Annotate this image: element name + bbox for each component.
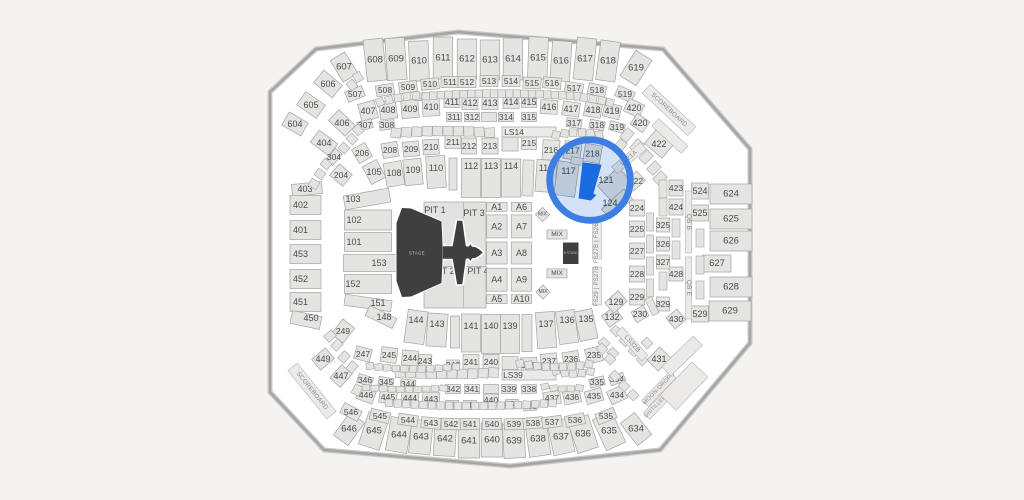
svg-text:112: 112 xyxy=(464,161,478,171)
svg-text:517: 517 xyxy=(567,83,581,93)
svg-text:QB B: QB B xyxy=(685,214,692,230)
svg-text:624: 624 xyxy=(723,189,739,200)
svg-text:634: 634 xyxy=(628,424,644,435)
svg-text:LS14: LS14 xyxy=(504,127,524,137)
svg-text:509: 509 xyxy=(401,82,415,92)
svg-text:213: 213 xyxy=(483,141,497,151)
svg-text:A8: A8 xyxy=(516,248,527,258)
svg-text:609: 609 xyxy=(388,54,404,65)
svg-text:204: 204 xyxy=(334,170,348,180)
svg-text:209: 209 xyxy=(404,144,418,154)
svg-text:325: 325 xyxy=(656,220,670,230)
svg-text:243: 243 xyxy=(418,356,432,366)
svg-text:515: 515 xyxy=(525,78,539,88)
svg-text:641: 641 xyxy=(461,436,477,447)
svg-text:FS29 | PS27B: FS29 | PS27B xyxy=(594,266,600,306)
svg-text:139: 139 xyxy=(502,321,517,331)
svg-text:A2: A2 xyxy=(491,221,502,231)
svg-text:319: 319 xyxy=(610,122,624,132)
svg-text:QB E: QB E xyxy=(685,280,692,297)
svg-text:544: 544 xyxy=(401,415,415,425)
svg-text:113: 113 xyxy=(484,161,498,171)
svg-text:428: 428 xyxy=(669,269,683,279)
svg-text:MIX: MIX xyxy=(551,270,563,277)
svg-text:413: 413 xyxy=(482,98,497,108)
svg-text:613: 613 xyxy=(482,55,498,66)
svg-text:228: 228 xyxy=(630,269,644,279)
svg-text:525: 525 xyxy=(692,208,707,218)
svg-text:420: 420 xyxy=(626,103,641,113)
svg-text:A3: A3 xyxy=(491,248,502,258)
svg-text:636: 636 xyxy=(575,429,591,440)
svg-text:516: 516 xyxy=(545,78,559,88)
svg-text:536: 536 xyxy=(568,415,582,425)
svg-text:431: 431 xyxy=(651,354,666,364)
svg-text:612: 612 xyxy=(459,54,475,65)
svg-text:244: 244 xyxy=(403,353,417,363)
svg-text:628: 628 xyxy=(723,282,739,293)
svg-text:110: 110 xyxy=(429,163,443,173)
svg-text:424: 424 xyxy=(669,202,683,212)
svg-text:141: 141 xyxy=(463,321,478,331)
svg-text:535: 535 xyxy=(599,411,613,421)
svg-text:408: 408 xyxy=(380,105,395,115)
svg-text:512: 512 xyxy=(460,77,474,87)
svg-text:PIT 3: PIT 3 xyxy=(463,208,484,218)
svg-text:129: 129 xyxy=(608,297,623,307)
svg-text:507: 507 xyxy=(348,89,362,99)
svg-text:629: 629 xyxy=(722,306,738,317)
svg-text:419: 419 xyxy=(604,106,619,116)
svg-text:402: 402 xyxy=(293,200,308,210)
svg-text:412: 412 xyxy=(462,98,477,108)
svg-text:215: 215 xyxy=(522,138,536,148)
svg-text:224: 224 xyxy=(630,203,644,213)
svg-text:206: 206 xyxy=(355,148,369,158)
svg-text:102: 102 xyxy=(346,215,361,225)
svg-text:524: 524 xyxy=(692,186,707,196)
svg-text:416: 416 xyxy=(541,102,556,112)
svg-text:610: 610 xyxy=(411,56,427,67)
svg-text:245: 245 xyxy=(382,350,396,360)
svg-text:311: 311 xyxy=(447,112,461,122)
svg-text:529: 529 xyxy=(692,309,707,319)
svg-text:538: 538 xyxy=(526,418,540,428)
svg-text:449: 449 xyxy=(315,354,330,364)
svg-text:312: 312 xyxy=(465,112,479,122)
svg-text:404: 404 xyxy=(316,138,331,148)
svg-text:208: 208 xyxy=(383,145,397,155)
svg-text:537: 537 xyxy=(545,417,559,427)
svg-text:415: 415 xyxy=(521,97,536,107)
svg-text:LS39: LS39 xyxy=(503,370,523,380)
svg-text:FS27B | FS26A: FS27B | FS26A xyxy=(594,219,600,263)
svg-text:327: 327 xyxy=(656,257,670,267)
svg-text:B STAGE: B STAGE xyxy=(564,251,578,255)
svg-text:447: 447 xyxy=(333,371,348,381)
svg-text:627: 627 xyxy=(709,258,725,269)
svg-text:225: 225 xyxy=(630,224,644,234)
svg-text:646: 646 xyxy=(341,424,357,435)
svg-text:645: 645 xyxy=(366,426,382,437)
svg-text:212: 212 xyxy=(462,141,476,151)
svg-text:346: 346 xyxy=(358,375,372,385)
svg-text:417: 417 xyxy=(563,104,578,114)
svg-text:249: 249 xyxy=(336,326,350,336)
svg-text:109: 109 xyxy=(405,165,420,175)
svg-text:132: 132 xyxy=(604,312,619,322)
svg-text:335: 335 xyxy=(590,377,604,387)
svg-text:423: 423 xyxy=(669,183,683,193)
svg-text:409: 409 xyxy=(402,104,417,114)
svg-text:105: 105 xyxy=(366,167,381,177)
svg-text:607: 607 xyxy=(336,62,352,73)
svg-text:604: 604 xyxy=(287,119,302,129)
svg-text:436: 436 xyxy=(565,392,579,402)
svg-text:152: 152 xyxy=(345,279,360,289)
svg-text:518: 518 xyxy=(590,85,604,95)
svg-text:PIT 1: PIT 1 xyxy=(424,205,445,215)
svg-text:414: 414 xyxy=(503,97,518,107)
svg-text:435: 435 xyxy=(587,391,601,401)
svg-text:153: 153 xyxy=(371,258,386,268)
svg-text:A1: A1 xyxy=(491,202,502,212)
svg-text:539: 539 xyxy=(507,419,521,429)
svg-text:638: 638 xyxy=(530,434,546,445)
svg-text:A5: A5 xyxy=(491,294,502,304)
svg-text:401: 401 xyxy=(293,225,308,235)
svg-text:434: 434 xyxy=(610,390,624,400)
svg-text:420: 420 xyxy=(632,118,647,128)
svg-text:211: 211 xyxy=(446,137,460,147)
svg-text:605: 605 xyxy=(303,100,318,110)
svg-text:101: 101 xyxy=(346,237,361,247)
svg-text:210: 210 xyxy=(424,142,438,152)
svg-text:227: 227 xyxy=(630,246,644,256)
svg-text:541: 541 xyxy=(463,419,477,429)
svg-text:644: 644 xyxy=(391,430,407,441)
svg-text:314: 314 xyxy=(499,112,513,122)
svg-text:240: 240 xyxy=(484,357,498,367)
svg-text:618: 618 xyxy=(600,56,616,67)
svg-text:614: 614 xyxy=(505,54,521,65)
svg-text:135: 135 xyxy=(578,314,593,324)
svg-text:430: 430 xyxy=(669,314,683,324)
svg-text:A6: A6 xyxy=(516,202,527,212)
svg-text:230: 230 xyxy=(633,309,647,319)
svg-text:A9: A9 xyxy=(516,275,527,285)
svg-text:608: 608 xyxy=(367,55,383,66)
svg-text:339: 339 xyxy=(502,384,516,394)
svg-text:450: 450 xyxy=(303,313,318,323)
svg-text:315: 315 xyxy=(522,112,536,122)
svg-text:A7: A7 xyxy=(516,221,527,231)
svg-text:639: 639 xyxy=(506,436,522,447)
svg-text:418: 418 xyxy=(585,105,600,115)
svg-text:625: 625 xyxy=(723,214,739,225)
svg-text:626: 626 xyxy=(723,236,739,247)
svg-text:108: 108 xyxy=(386,168,401,178)
svg-text:338: 338 xyxy=(522,384,536,394)
svg-text:410: 410 xyxy=(423,102,438,112)
svg-text:616: 616 xyxy=(553,56,569,67)
svg-text:148: 148 xyxy=(376,312,391,322)
svg-text:407: 407 xyxy=(360,106,375,116)
svg-text:A10: A10 xyxy=(513,294,529,304)
svg-text:317: 317 xyxy=(567,118,581,128)
svg-text:540: 540 xyxy=(485,419,499,429)
svg-text:511: 511 xyxy=(443,77,457,87)
svg-text:143: 143 xyxy=(429,319,444,329)
svg-text:543: 543 xyxy=(424,418,438,428)
svg-text:PIT 4: PIT 4 xyxy=(467,266,488,276)
svg-text:318: 318 xyxy=(590,120,604,130)
svg-text:545: 545 xyxy=(373,411,387,421)
svg-text:114: 114 xyxy=(504,161,518,171)
svg-text:STAGE: STAGE xyxy=(409,251,425,256)
svg-text:642: 642 xyxy=(437,434,453,445)
svg-text:640: 640 xyxy=(484,435,500,446)
svg-text:144: 144 xyxy=(408,315,423,325)
svg-text:637: 637 xyxy=(553,432,569,443)
svg-text:615: 615 xyxy=(530,53,546,64)
svg-text:341: 341 xyxy=(465,384,479,394)
svg-text:635: 635 xyxy=(601,426,617,437)
svg-text:140: 140 xyxy=(483,321,498,331)
svg-text:519: 519 xyxy=(618,89,632,99)
svg-text:326: 326 xyxy=(656,239,670,249)
svg-text:136: 136 xyxy=(559,315,574,325)
svg-text:514: 514 xyxy=(504,76,518,86)
svg-text:513: 513 xyxy=(482,76,496,86)
svg-text:508: 508 xyxy=(378,85,392,95)
svg-text:A4: A4 xyxy=(491,275,502,285)
svg-text:MIX: MIX xyxy=(539,289,549,295)
svg-text:406: 406 xyxy=(334,118,349,128)
svg-text:137: 137 xyxy=(538,319,553,329)
svg-text:643: 643 xyxy=(413,432,429,443)
svg-text:453: 453 xyxy=(293,249,308,259)
svg-text:451: 451 xyxy=(293,297,308,307)
svg-text:542: 542 xyxy=(444,419,458,429)
svg-text:546: 546 xyxy=(344,407,358,417)
svg-text:MIX: MIX xyxy=(551,231,563,238)
svg-text:510: 510 xyxy=(423,79,437,89)
svg-text:422: 422 xyxy=(651,139,666,149)
svg-text:229: 229 xyxy=(630,292,644,302)
svg-text:611: 611 xyxy=(435,53,450,64)
svg-text:452: 452 xyxy=(293,274,308,284)
svg-text:342: 342 xyxy=(446,384,460,394)
svg-text:304: 304 xyxy=(327,152,341,162)
svg-text:MIX: MIX xyxy=(538,212,548,218)
svg-text:329: 329 xyxy=(656,299,670,309)
svg-text:103: 103 xyxy=(345,194,360,204)
svg-text:619: 619 xyxy=(628,63,644,74)
svg-text:617: 617 xyxy=(577,54,593,65)
svg-text:606: 606 xyxy=(320,79,335,89)
svg-text:241: 241 xyxy=(464,357,478,367)
svg-text:247: 247 xyxy=(356,349,370,359)
